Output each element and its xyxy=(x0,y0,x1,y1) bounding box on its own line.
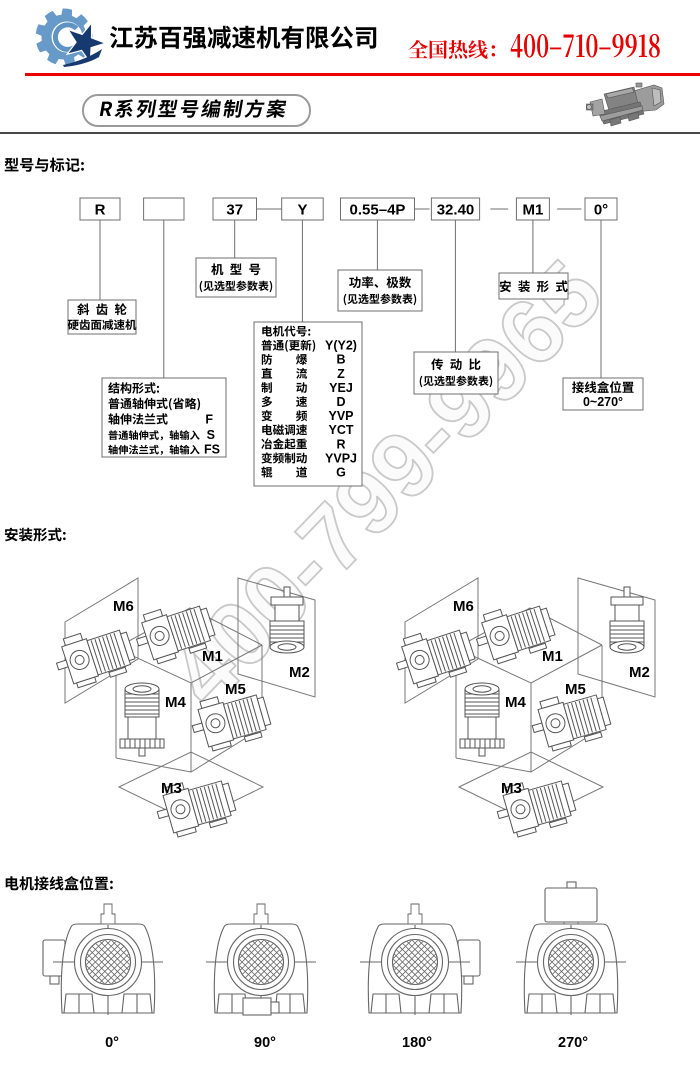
svg-text:F: F xyxy=(205,413,213,427)
svg-text:G: G xyxy=(336,466,346,480)
svg-text:0.55–4P: 0.55–4P xyxy=(350,202,406,219)
svg-text:37: 37 xyxy=(226,202,243,219)
svg-text:M5: M5 xyxy=(225,681,246,698)
svg-text:M1: M1 xyxy=(522,202,543,219)
svg-text:Z: Z xyxy=(337,367,345,381)
svg-text:R: R xyxy=(95,202,106,219)
svg-text:R: R xyxy=(336,437,345,451)
svg-text:M3: M3 xyxy=(161,780,182,797)
svg-text:180°: 180° xyxy=(402,1035,432,1051)
svg-text:Y(Y2): Y(Y2) xyxy=(325,339,357,353)
svg-text:Y: Y xyxy=(297,202,307,219)
svg-text:0°: 0° xyxy=(105,1035,119,1051)
svg-text:90°: 90° xyxy=(254,1035,276,1051)
svg-text:S: S xyxy=(207,428,215,442)
svg-text:M2: M2 xyxy=(289,664,310,681)
svg-text:YVPJ: YVPJ xyxy=(325,451,357,465)
svg-text:270°: 270° xyxy=(558,1035,588,1051)
svg-text:YVP: YVP xyxy=(328,409,353,423)
svg-text:32.40: 32.40 xyxy=(437,202,475,219)
svg-text:M4: M4 xyxy=(165,694,186,711)
svg-text:YEJ: YEJ xyxy=(329,381,353,395)
svg-text:M6: M6 xyxy=(113,598,134,615)
svg-text:B: B xyxy=(336,353,345,367)
svg-text:0~270°: 0~270° xyxy=(583,395,623,409)
svg-text:0°: 0° xyxy=(594,202,608,219)
svg-text:FS: FS xyxy=(204,443,220,457)
svg-text:YCT: YCT xyxy=(329,423,354,437)
svg-text:D: D xyxy=(336,395,345,409)
svg-text:M1: M1 xyxy=(202,648,223,665)
